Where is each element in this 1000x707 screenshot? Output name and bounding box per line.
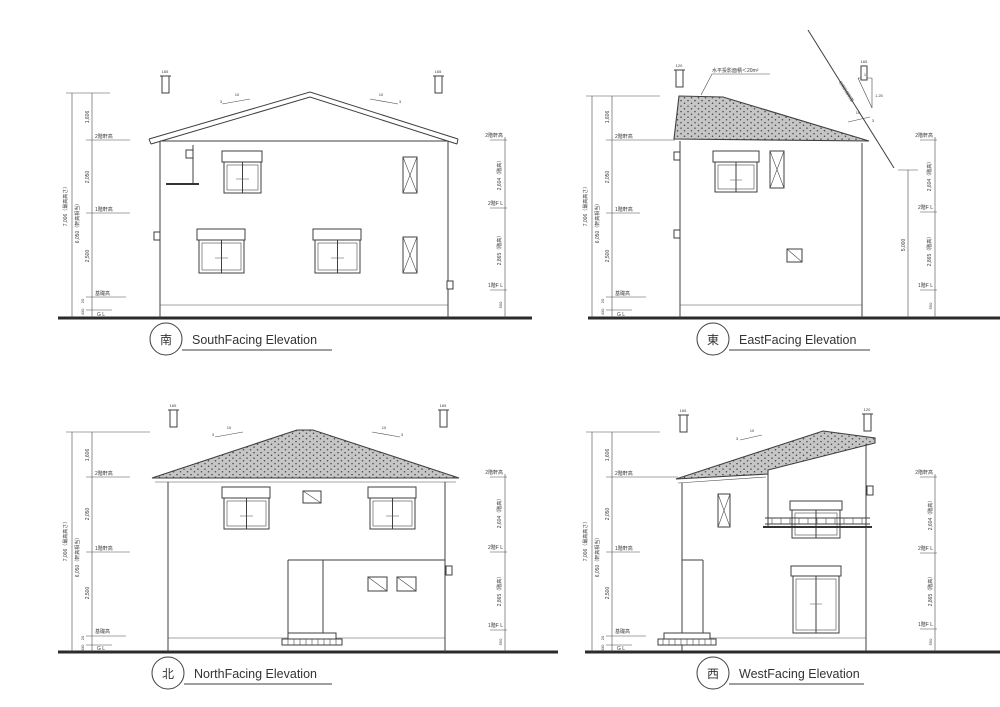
west-dim-total-eave: 6,050（軒高相当） (594, 535, 601, 578)
north-label-eave1f: 1階軒高 (95, 545, 113, 552)
east-dim-seg-top: 1,606 (605, 111, 611, 124)
east-dim-total-max: 7,006（最高高さ） (582, 184, 589, 227)
west-label-eave1f: 1階軒高 (615, 545, 633, 552)
north-dim-seg-base: 430 (80, 644, 85, 651)
north-elevation-title: NorthFacing Elevation (194, 667, 317, 681)
south-label-gl: G L (97, 312, 105, 318)
east-story-lower: 2,865（階高） (926, 234, 933, 267)
north-pitch-run-right: 10 (382, 425, 387, 430)
south-right-eave2f: 2階軒高 (485, 132, 503, 139)
south-label-eave2f: 2階軒高 (95, 133, 113, 140)
west-dim-seg-plinth: 20 (600, 635, 605, 640)
south-dim-seg-base: 430 (80, 308, 85, 315)
south-dim-total-max: 7,006（最高高さ） (62, 184, 69, 227)
east-pitch-run: 10 (856, 110, 861, 115)
north-building (152, 410, 459, 652)
north-label-foundation: 基礎高 (95, 628, 110, 635)
east-inner-height: 5,000 (901, 239, 907, 252)
south-right-fl2: 2階F L (488, 200, 503, 207)
west-elevation-title: WestFacing Elevation (739, 667, 860, 681)
south-pitch-rise-left: 3 (220, 99, 223, 104)
west-vent-left-dim: 165 (680, 408, 687, 413)
west-story-upper: 2,604（階高） (927, 498, 934, 531)
south-right-fl1: 1階F L (488, 282, 503, 289)
elevation-drawing: 7,006（最高高さ） 6,050（軒高相当） 1,606 2,050 2,50… (0, 0, 1000, 707)
south-pitch-rise-right: 3 (399, 99, 402, 104)
north-dim-seg-plinth: 20 (80, 635, 85, 640)
north-story-lower: 2,865（階高） (496, 574, 503, 607)
east-vent-left-dim: 120 (676, 63, 683, 68)
north-fl1-height: 550 (498, 638, 503, 645)
east-dim-seg-mid: 2,050 (605, 171, 611, 184)
east-direction-kanji: 東 (707, 333, 719, 347)
east-dim-seg-low: 2,500 (605, 250, 611, 263)
south-building (149, 76, 458, 318)
south-fl1-height: 550 (498, 301, 503, 308)
west-dim-seg-low: 2,500 (605, 587, 611, 600)
north-right-fl2: 2階F L (488, 544, 503, 551)
south-vent-left-dim: 165 (162, 69, 169, 74)
west-dim-seg-top: 1,606 (605, 449, 611, 462)
north-elevation: 7,006（最高高さ） 6,050（軒高相当） 1,606 2,050 2,50… (58, 403, 558, 689)
south-direction-kanji: 南 (160, 332, 172, 347)
west-right-fl2: 2階F L (918, 545, 933, 552)
south-dim-seg-low: 2,500 (85, 250, 91, 263)
west-direction-kanji: 西 (707, 667, 719, 681)
east-roof-area-note: 水平投影面積＜20m² (712, 67, 759, 74)
north-story-upper: 2,604（階高） (496, 496, 503, 529)
south-dim-seg-top: 1,606 (85, 111, 91, 124)
east-dim-seg-plinth: 20 (600, 298, 605, 303)
west-pitch-rise: 3 (736, 436, 739, 441)
south-label-foundation: 基礎高 (95, 290, 110, 297)
east-vent-right-dim: 165 (861, 59, 868, 64)
north-pitch-rise-left: 3 (212, 432, 215, 437)
west-right-fl1: 1階F L (918, 621, 933, 628)
east-right-eave2f: 2階軒高 (915, 132, 933, 139)
south-dim-seg-plinth: 20 (80, 298, 85, 303)
east-label-eave1f: 1階軒高 (615, 206, 633, 213)
west-label-foundation: 基礎高 (615, 628, 630, 635)
east-label-eave2f: 2階軒高 (615, 133, 633, 140)
south-story-upper: 2,604（階高） (496, 158, 503, 191)
east-right-fl2: 2階F L (918, 204, 933, 211)
west-dim-total-max: 7,006（最高高さ） (582, 519, 589, 562)
south-story-lower: 2,865（階高） (496, 233, 503, 266)
north-label-eave2f: 2階軒高 (95, 470, 113, 477)
east-slope-rise: 1.25 (875, 93, 884, 98)
east-pitch-rise: 3 (872, 118, 875, 123)
north-dim-total-eave: 6,050（軒高相当） (74, 535, 81, 578)
south-pitch-run-right: 10 (379, 92, 384, 97)
west-right-eave2f: 2階軒高 (915, 469, 933, 476)
east-fl1-height: 550 (928, 302, 933, 309)
north-pitch-run-left: 10 (227, 425, 232, 430)
west-pitch-run: 10 (750, 428, 755, 433)
south-dim-total-eave: 6,050（軒高相当） (74, 201, 81, 244)
south-vent-right-dim: 165 (435, 69, 442, 74)
north-vent-right-dim: 165 (440, 403, 447, 408)
west-fl1-height: 550 (928, 638, 933, 645)
west-label-gl: G L (617, 646, 625, 652)
west-dim-seg-base: 430 (600, 644, 605, 651)
east-label-foundation: 基礎高 (615, 290, 630, 297)
east-elevation-title: EastFacing Elevation (739, 333, 856, 347)
north-right-fl1: 1階F L (488, 622, 503, 629)
east-dim-seg-base: 430 (600, 308, 605, 315)
west-label-eave2f: 2階軒高 (615, 470, 633, 477)
north-vent-left-dim: 165 (170, 403, 177, 408)
north-dim-seg-top: 1,606 (85, 449, 91, 462)
east-building (674, 30, 918, 318)
east-label-gl: G L (617, 312, 625, 318)
east-setback-label: 北側斜線制限 (838, 79, 856, 103)
north-dim-seg-mid: 2,050 (85, 508, 91, 521)
north-dim-seg-low: 2,500 (85, 587, 91, 600)
east-right-fl1: 1階F L (918, 282, 933, 289)
north-pitch-rise-right: 3 (401, 432, 404, 437)
south-dim-seg-mid: 2,050 (85, 171, 91, 184)
north-direction-kanji: 北 (162, 667, 174, 681)
north-label-gl: G L (97, 646, 105, 652)
east-dim-total-eave: 6,050（軒高相当） (594, 201, 601, 244)
north-dim-total-max: 7,006（最高高さ） (62, 519, 69, 562)
east-elevation: 7,006（最高高さ） 6,050（軒高相当） 1,606 2,050 2,50… (582, 30, 1000, 355)
south-elevation: 7,006（最高高さ） 6,050（軒高相当） 1,606 2,050 2,50… (58, 69, 532, 355)
west-elevation: 7,006（最高高さ） 6,050（軒高相当） 1,606 2,050 2,50… (582, 407, 1000, 689)
west-vent-right-dim: 120 (864, 407, 871, 412)
west-dim-seg-mid: 2,050 (605, 508, 611, 521)
south-pitch-run-left: 10 (235, 92, 240, 97)
drawing-sheet: 7,006（最高高さ） 6,050（軒高相当） 1,606 2,050 2,50… (0, 0, 1000, 707)
south-label-eave1f: 1階軒高 (95, 206, 113, 213)
east-story-upper: 2,604（階高） (926, 159, 933, 192)
west-building (658, 414, 875, 652)
south-elevation-title: SouthFacing Elevation (192, 333, 317, 347)
west-story-lower: 2,865（階高） (927, 574, 934, 607)
north-right-eave2f: 2階軒高 (485, 469, 503, 476)
